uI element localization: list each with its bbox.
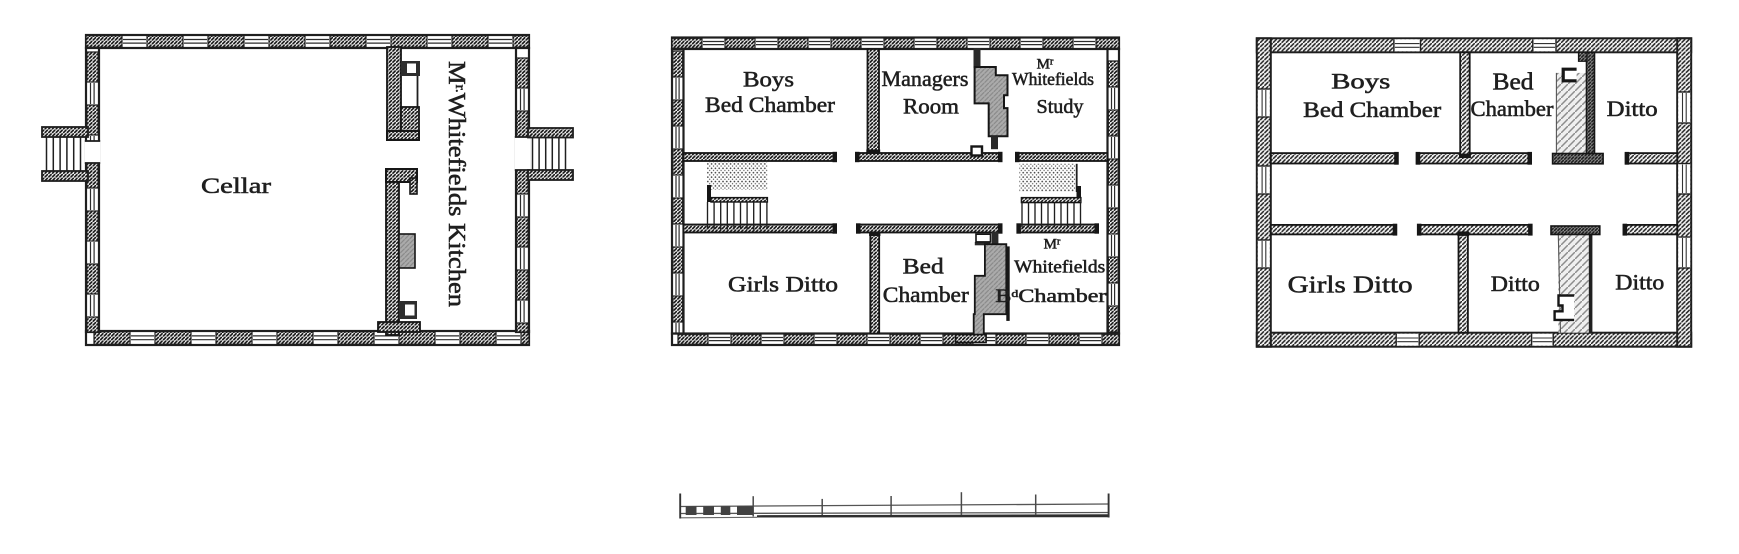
svg-text:Ditto: Ditto [1615, 270, 1664, 295]
svg-text:Ditto: Ditto [1491, 271, 1540, 296]
svg-text:Whitefields: Whitefields [1014, 257, 1105, 277]
svg-text:Room: Room [903, 94, 959, 119]
svg-text:Ditto: Ditto [1607, 96, 1658, 121]
svg-text:Cellar: Cellar [201, 173, 272, 198]
svg-text:Boys: Boys [1331, 69, 1390, 94]
svg-text:BdChamber: BdChamber [995, 286, 1107, 307]
svg-text:Mr: Mr [1044, 237, 1061, 253]
svg-text:Girls Ditto: Girls Ditto [728, 272, 838, 297]
svg-text:Bed Chamber: Bed Chamber [1303, 97, 1442, 122]
svg-text:Chamber: Chamber [883, 282, 970, 307]
svg-text:Mr.Whitefields Kitchen: Mr.Whitefields Kitchen [443, 61, 469, 307]
svg-text:Bed: Bed [903, 254, 944, 279]
svg-text:Bed Chamber: Bed Chamber [705, 92, 836, 117]
svg-text:Managers: Managers [882, 66, 969, 91]
svg-text:Chamber: Chamber [1471, 96, 1555, 121]
svg-text:Study: Study [1037, 96, 1084, 118]
svg-text:Boys: Boys [743, 67, 794, 92]
svg-text:Whitefields: Whitefields [1012, 69, 1094, 89]
svg-text:Girls Ditto: Girls Ditto [1288, 273, 1413, 299]
svg-text:Bed: Bed [1493, 70, 1534, 96]
